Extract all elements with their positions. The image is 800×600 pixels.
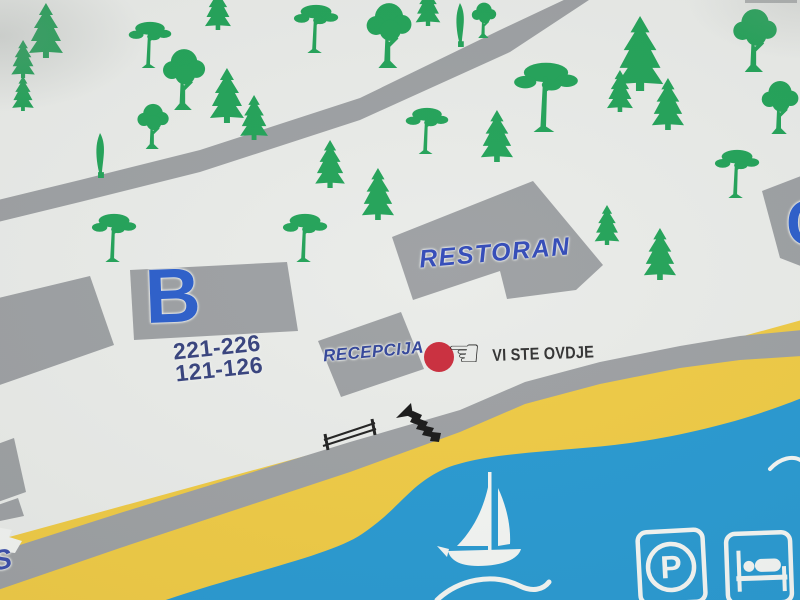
you-are-here-label: VI STE OVDJE — [492, 343, 594, 364]
fir-tree-icon — [652, 78, 684, 130]
deciduous-tree-icon — [733, 9, 776, 72]
parking-letter: P — [659, 548, 682, 585]
resort-map: P B 221-226 121-126 RESTORAN RECEPCIJA ☜… — [0, 0, 800, 600]
fir-tree-icon — [11, 40, 34, 78]
deciduous-tree-icon — [163, 49, 205, 110]
cypress-tree-icon — [96, 133, 104, 178]
pine-tree-icon — [294, 5, 338, 53]
road-upper — [0, 0, 592, 222]
fir-tree-icon — [210, 68, 244, 123]
fir-tree-icon — [12, 76, 34, 111]
pine-tree-icon — [129, 22, 171, 68]
fir-tree-icon — [595, 205, 620, 245]
pine-tree-icon — [283, 214, 327, 262]
fir-tree-icon — [617, 16, 663, 91]
fir-tree-icon — [240, 95, 268, 140]
edge-artifact — [745, 0, 797, 3]
map-graphic: P — [0, 0, 800, 600]
deciduous-tree-icon — [367, 3, 412, 68]
fir-tree-icon — [315, 140, 345, 188]
building-b-label: B — [144, 265, 202, 327]
fir-tree-icon — [205, 0, 231, 30]
building-left — [0, 276, 114, 387]
pointing-hand-icon: ☜ — [447, 334, 481, 372]
cypress-tree-icon — [456, 3, 463, 47]
deciduous-tree-icon — [137, 104, 168, 149]
building-small-left-1 — [0, 438, 26, 503]
fir-tree-icon — [362, 168, 394, 220]
pine-tree-icon — [514, 63, 578, 132]
deciduous-tree-icon — [762, 81, 799, 134]
fir-tree-icon — [29, 3, 63, 58]
fir-tree-icon — [481, 110, 513, 162]
fir-tree-icon — [416, 0, 441, 26]
building-c-label: C — [786, 191, 800, 255]
pine-tree-icon — [92, 214, 136, 262]
building-small-left-2 — [0, 498, 24, 522]
pine-tree-icon — [715, 150, 759, 198]
fir-tree-icon — [644, 228, 676, 280]
pine-tree-icon — [406, 108, 448, 154]
deciduous-tree-icon — [472, 3, 496, 38]
